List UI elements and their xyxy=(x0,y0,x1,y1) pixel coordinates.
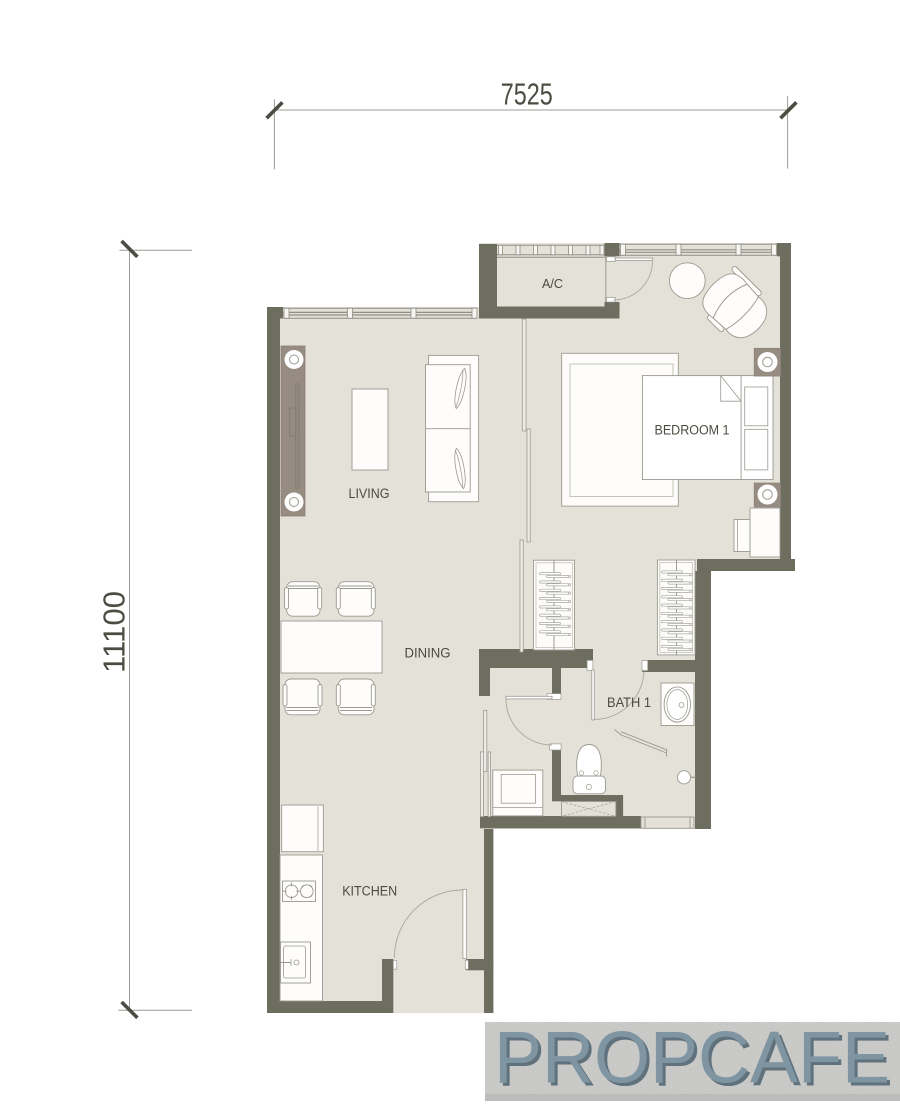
svg-text:LIVING: LIVING xyxy=(349,486,390,501)
svg-text:BEDROOM 1: BEDROOM 1 xyxy=(655,423,730,438)
svg-text:DINING: DINING xyxy=(405,646,451,661)
svg-text:KITCHEN: KITCHEN xyxy=(342,884,397,899)
svg-text:7525: 7525 xyxy=(501,77,553,112)
svg-text:11100: 11100 xyxy=(97,591,132,673)
svg-text:A/C: A/C xyxy=(542,276,563,291)
svg-text:BATH 1: BATH 1 xyxy=(607,695,651,710)
svg-text:PROPCAFE: PROPCAFE xyxy=(494,1018,890,1099)
